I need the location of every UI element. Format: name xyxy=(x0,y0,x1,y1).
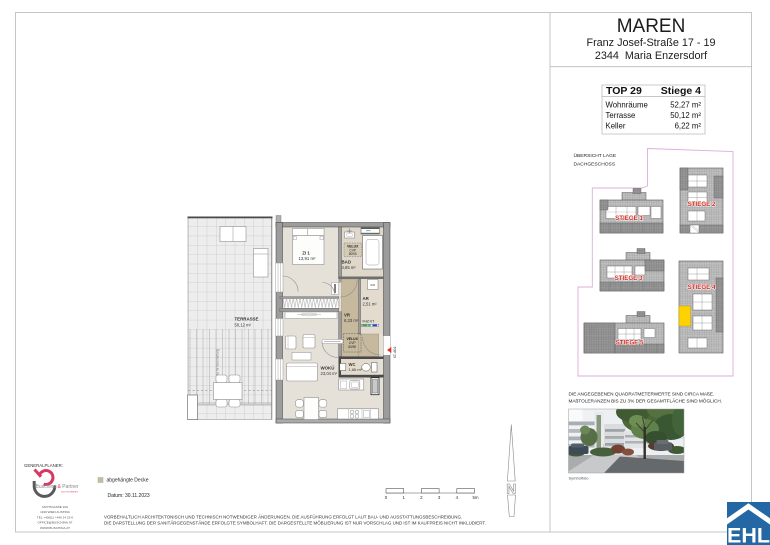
svg-text:VR: VR xyxy=(344,313,351,318)
svg-text:TERRASSE: TERRASSE xyxy=(235,317,259,322)
svg-text:OFFICE@BUSCHINA.AT: OFFICE@BUSCHINA.AT xyxy=(37,521,72,525)
svg-text:Symbolfoto: Symbolfoto xyxy=(569,476,590,481)
svg-text:1190 WIEN AUSTRIA: 1190 WIEN AUSTRIA xyxy=(40,510,71,514)
svg-text:1,66 m²: 1,66 m² xyxy=(349,367,363,372)
svg-text:STIEGE 3: STIEGE 3 xyxy=(615,275,643,282)
svg-text:STIEGE 2: STIEGE 2 xyxy=(688,201,716,208)
svg-text:WM: WM xyxy=(370,283,376,287)
svg-text:60/90: 60/90 xyxy=(348,345,356,349)
svg-text:ZI 1: ZI 1 xyxy=(302,251,310,256)
svg-text:Wohnräume: Wohnräume xyxy=(606,101,648,110)
svg-text:MAßTOLERANZEN BIS ZU 3% DER GE: MAßTOLERANZEN BIS ZU 3% DER GESAMTFLÄCHE… xyxy=(569,397,723,403)
svg-text:TOP 29: TOP 29 xyxy=(606,85,642,97)
svg-text:GENERALPLANER:: GENERALPLANER: xyxy=(24,463,63,468)
svg-text:6,22 m²: 6,22 m² xyxy=(675,122,702,131)
svg-text:50,12 m²: 50,12 m² xyxy=(235,323,252,328)
svg-text:MAREN: MAREN xyxy=(617,16,686,37)
svg-text:Terrasse: Terrasse xyxy=(606,111,636,120)
svg-text:DIE DARSTELLUNG DER SANITÄRGEG: DIE DARSTELLUNG DER SANITÄRGEGENSTÄNDE E… xyxy=(104,519,486,525)
svg-text:4,85 m²: 4,85 m² xyxy=(342,265,357,270)
svg-text:ZIVILTECHNIKER: ZIVILTECHNIKER xyxy=(61,492,78,494)
svg-text:2344 Maria Enzersdorf: 2344 Maria Enzersdorf xyxy=(595,50,708,62)
svg-text:Franz Josef-Straße 17 - 19: Franz Josef-Straße 17 - 19 xyxy=(586,37,715,49)
svg-text:STIEGE 1: STIEGE 1 xyxy=(615,215,643,222)
svg-text:STIEGE 5: STIEGE 5 xyxy=(616,340,644,347)
svg-text:abgehängte Decke: abgehängte Decke xyxy=(107,478,149,484)
svg-text:Stiege 4: Stiege 4 xyxy=(661,85,701,97)
svg-text:5m: 5m xyxy=(472,495,478,500)
svg-text:Buschina & Partner: Buschina & Partner xyxy=(36,484,79,490)
svg-text:FHZ-VT: FHZ-VT xyxy=(363,320,375,324)
svg-text:52,27 m²: 52,27 m² xyxy=(670,101,701,110)
svg-text:VORBEHALTLICH ARCHITEKTONISCH: VORBEHALTLICH ARCHITEKTONISCH UND TECHNI… xyxy=(104,514,462,520)
svg-text:50,12 m²: 50,12 m² xyxy=(670,111,701,120)
svg-text:WWW.BUSCHINA.AT: WWW.BUSCHINA.AT xyxy=(40,526,70,530)
svg-text:MUTHGASSE 109: MUTHGASSE 109 xyxy=(42,505,68,509)
svg-text:DIE ANGEGEBENEN QUADRATMETERWE: DIE ANGEGEBENEN QUADRATMETERWERTE SIND C… xyxy=(569,392,715,397)
svg-text:N: N xyxy=(506,481,516,497)
svg-text:TEL +43(0)1 / 440 14 22-0: TEL +43(0)1 / 440 14 22-0 xyxy=(37,515,74,519)
svg-text:WOKÜ: WOKÜ xyxy=(321,366,335,371)
svg-text:6,33 m²: 6,33 m² xyxy=(344,318,359,323)
svg-text:60/90: 60/90 xyxy=(349,252,357,256)
svg-text:13,91 m²: 13,91 m² xyxy=(299,256,317,261)
svg-text:STIEGE 4: STIEGE 4 xyxy=(688,284,716,291)
svg-text:DACHGESCHOSS: DACHGESCHOSS xyxy=(574,162,616,168)
svg-text:AR: AR xyxy=(363,296,370,301)
svg-text:TOP 29: TOP 29 xyxy=(393,347,397,359)
svg-text:ÜBERSICHT LAGE: ÜBERSICHT LAGE xyxy=(574,152,617,159)
svg-text:Keller: Keller xyxy=(606,122,626,131)
svg-text:BAD: BAD xyxy=(342,260,352,265)
svg-text:23,04 m²: 23,04 m² xyxy=(321,371,338,376)
svg-text:Datum: 30.11.2023: Datum: 30.11.2023 xyxy=(108,493,150,499)
svg-text:2,51 m²: 2,51 m² xyxy=(363,301,378,306)
svg-text:EHL: EHL xyxy=(727,524,770,545)
